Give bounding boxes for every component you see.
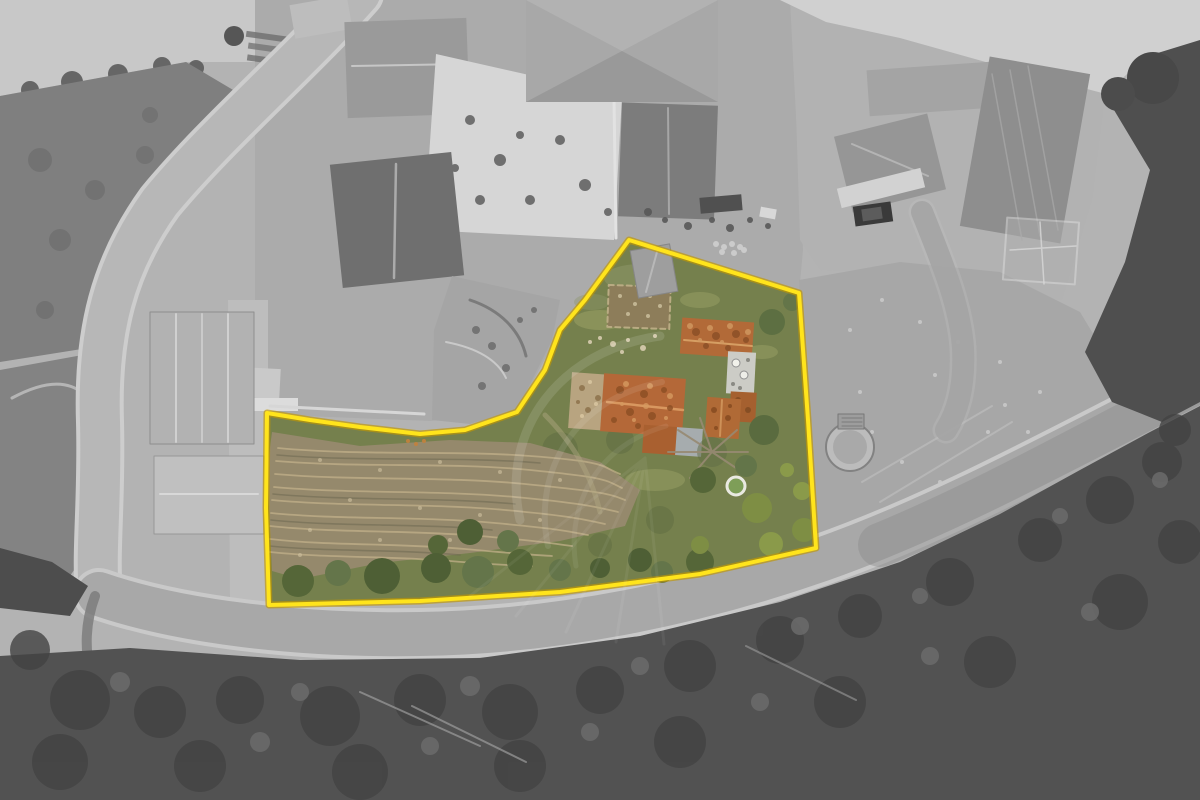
upper-roof-patches-dot [725, 345, 731, 351]
forest-canopy-light-dot [291, 683, 309, 701]
pasture-texture-dot [49, 229, 71, 251]
forest-canopy-dark-dot [494, 740, 546, 792]
house-main-tex-dark-dot [661, 387, 667, 393]
forest-canopy-light-dot [460, 676, 480, 696]
terrace-debris-dot [502, 364, 510, 372]
right-field-speckles-dot [880, 298, 884, 302]
forest-canopy-dark-dot [664, 640, 716, 692]
upper-roof-light-dot [698, 338, 702, 342]
forest-canopy-dark-dot [1158, 520, 1200, 564]
forest-canopy-dark-dot [50, 670, 110, 730]
forest-canopy-dark-dot [300, 686, 360, 746]
annex-east-tex-dot [714, 426, 718, 430]
courtyard-debris-dot [475, 195, 485, 205]
house-main-tex-dark-dot [635, 423, 641, 429]
forest-canopy-light-dot [1152, 472, 1168, 488]
courtyard-debris-dot [604, 208, 612, 216]
plow-speckles-dot [298, 553, 302, 557]
forest-canopy-dark-dot [654, 716, 706, 768]
right-field-speckles-dot [848, 328, 852, 332]
annex-east-tex-dot [725, 415, 731, 421]
courtyard-debris-dot [525, 195, 535, 205]
forest-canopy-light-dot [1081, 603, 1099, 621]
plow-speckles-dot [448, 538, 452, 542]
junk-north-of-parcel-dot [644, 208, 652, 216]
wood-debris-dot [588, 340, 592, 344]
bush-east-b-dot [759, 532, 783, 556]
garden-speckles-dot [658, 304, 662, 308]
green-tree-4 [759, 309, 785, 335]
plow-speckles-dot [348, 498, 352, 502]
forest-canopy-dark-dot [964, 636, 1016, 688]
forest-canopy-dark-dot [10, 630, 50, 670]
courtyard-debris-dot [555, 135, 565, 145]
round-pool [727, 477, 745, 495]
tank-inner [833, 430, 867, 464]
upper-roof-patches-dot [712, 332, 720, 340]
terrace-debris-dot [531, 307, 537, 313]
ruin-marks-dot [746, 358, 750, 362]
bush-east-b-dot [793, 482, 811, 500]
junk-north-of-parcel-dot [747, 217, 753, 223]
tree-dark-ne-2 [1101, 77, 1135, 111]
wood-debris-dot [620, 350, 624, 354]
upper-roof-light-dot [745, 329, 751, 335]
orange-dots-field-dot [414, 442, 418, 446]
forest-canopy-dark-dot [1159, 414, 1191, 446]
courtyard-debris-dot [494, 154, 506, 166]
forest-canopy-dark-dot [838, 594, 882, 638]
upper-roof-light-dot [727, 323, 733, 329]
forest-canopy-dark-dot [1086, 476, 1134, 524]
right-field-speckles-dot [1003, 403, 1007, 407]
annex-east-tex-dot [728, 404, 732, 408]
bush-east-a-dot [742, 493, 772, 523]
junk-north-of-parcel-dot [765, 223, 771, 229]
plow-speckles-dot [378, 538, 382, 542]
plow-speckles-dot [558, 478, 562, 482]
forest-canopy-light-dot [250, 732, 270, 752]
forest-canopy-light-dot [421, 737, 439, 755]
terrace-debris-dot [517, 317, 523, 323]
bush-top-left [224, 26, 244, 46]
garden-speckles-dot [633, 302, 637, 306]
tree-row-a-dot [282, 565, 314, 597]
house-main-tex-light-dot [623, 381, 629, 387]
courtyard-wall-east [614, 98, 616, 238]
house-left-tex-dark-dot [579, 385, 585, 391]
wood-debris-dot [598, 336, 602, 340]
orange-dots-field-dot [422, 439, 426, 443]
ruin-marks-dot [738, 386, 742, 390]
upper-roof-patches-dot [692, 328, 700, 336]
ruin-tub-2 [740, 371, 748, 379]
forest-canopy-dark-dot [174, 740, 226, 792]
garden-speckles-dot [646, 314, 650, 318]
house-main-tex-dark-dot [640, 390, 648, 398]
terrace-debris-dot [472, 326, 480, 334]
junk-north-of-parcel-dot [709, 217, 715, 223]
plow-speckles-dot [308, 528, 312, 532]
house-left-tex-dark-dot [576, 400, 580, 404]
ruin-marks-dot [731, 382, 735, 386]
forest-canopy-light-dot [912, 588, 928, 604]
right-field-speckles-dot [858, 390, 862, 394]
house-main-tex-dark-dot [626, 408, 634, 416]
forest-canopy-dark-dot [576, 666, 624, 714]
upper-roof-light-dot [707, 325, 713, 331]
house-main-tex-light-dot [643, 403, 649, 409]
forest-canopy-dark-dot [32, 734, 88, 790]
forest-canopy-dark-dot [926, 558, 974, 606]
orange-dots-field-dot [406, 439, 410, 443]
junk-north-of-parcel-dot [662, 217, 668, 223]
forest-canopy-light-dot [751, 693, 769, 711]
plow-speckles-dot [438, 460, 442, 464]
tree-row-c-dot [457, 519, 483, 545]
upper-roof-patches-dot [703, 343, 709, 349]
right-field-speckles-dot [900, 460, 904, 464]
lumber-pile-dot [719, 249, 725, 255]
plow-speckles-dot [478, 513, 482, 517]
forest-canopy-light-dot [110, 672, 130, 692]
tree-row-b-dot [462, 556, 494, 588]
forest-canopy-dark-dot [1092, 574, 1148, 630]
house-main-tex-dark-dot [667, 405, 673, 411]
courtyard-debris-dot [579, 179, 591, 191]
annex-east [705, 397, 742, 439]
house-left-tex-dark-dot [595, 395, 601, 401]
courtyard-debris-dot [465, 115, 475, 125]
pasture-texture-dot [85, 180, 105, 200]
upper-roof-patches-dot [732, 330, 740, 338]
garden-speckles-dot [626, 312, 630, 316]
plow-speckles-dot [418, 506, 422, 510]
ruin-tub-1 [732, 359, 740, 367]
lumber-pile-dot [729, 241, 735, 247]
tree-row-c-dot [421, 553, 451, 583]
terrace-debris-dot [478, 382, 486, 390]
forest-canopy-light-dot [921, 647, 939, 665]
lumber-pile-dot [741, 247, 747, 253]
tree-row-b-dot [325, 560, 351, 586]
right-field-speckles-dot [986, 430, 990, 434]
house-left-tex-light-dot [588, 380, 592, 384]
right-field-speckles-dot [918, 320, 922, 324]
forest-canopy-light-dot [631, 657, 649, 675]
house-main-tex-light-dot [667, 393, 673, 399]
lumber-pile-dot [731, 250, 737, 256]
forest-canopy-dark-dot [482, 684, 538, 740]
forest-canopy-light-dot [581, 723, 599, 741]
house-main-tex-light-dot [632, 418, 636, 422]
ruin-roof-bit-tex-dot [745, 407, 751, 413]
terrace-debris-dot [488, 342, 496, 350]
annex-east-tex-dot [711, 407, 717, 413]
plow-speckles-dot [318, 458, 322, 462]
pasture-texture-dot [28, 148, 52, 172]
bush-east-b-dot [780, 463, 794, 477]
farm-roof-a [867, 62, 994, 117]
green-tree-1 [749, 415, 779, 445]
pasture-texture-dot [36, 301, 54, 319]
house-left-tex-light-dot [594, 402, 598, 406]
plow-speckles-dot [498, 470, 502, 474]
lumber-pile-dot [713, 241, 719, 247]
lawn-patch-2 [680, 292, 720, 308]
garden-speckles-dot [618, 294, 622, 298]
house-main-tex-light-dot [664, 416, 668, 420]
house-main-tex-dark-dot [611, 417, 617, 423]
green-tree-3 [690, 467, 716, 493]
forest-canopy-dark-dot [134, 686, 186, 738]
right-field-speckles-dot [998, 360, 1002, 364]
forest-canopy-light-dot [791, 617, 809, 635]
forest-canopy-dark-dot [1018, 518, 1062, 562]
green-tree-2 [735, 455, 757, 477]
upper-roof-light-dot [720, 340, 724, 344]
tree-row-a-dot [428, 535, 448, 555]
scene-svg [0, 0, 1200, 800]
tree-row-b-dot [497, 530, 519, 552]
forest-canopy-dark-dot [332, 744, 388, 800]
junk-north-of-parcel-dot [726, 224, 734, 232]
forest-canopy-light-dot [1052, 508, 1068, 524]
right-field-speckles-dot [1026, 430, 1030, 434]
aerial-property-photo [0, 0, 1200, 800]
house-main-tex-dark-dot [648, 412, 656, 420]
courtyard-debris-dot [516, 131, 524, 139]
upper-roof-light-dot [687, 323, 693, 329]
right-field-speckles-dot [933, 373, 937, 377]
house-main-tex-light-dot [620, 402, 624, 406]
upper-roof-patches-dot [743, 337, 749, 343]
tree-row-c-dot [364, 558, 400, 594]
plow-speckles-dot [378, 468, 382, 472]
pasture-texture-dot [142, 107, 158, 123]
forest-canopy-dark-dot [216, 676, 264, 724]
pasture-texture-dot [136, 146, 154, 164]
roof-dark-center-ridge [668, 108, 669, 214]
junk-north-of-parcel-dot [684, 222, 692, 230]
bush-east-a-dot [691, 536, 709, 554]
plow-speckles-dot [538, 518, 542, 522]
wood-debris-dot [640, 345, 646, 351]
right-field-speckles-dot [1038, 390, 1042, 394]
